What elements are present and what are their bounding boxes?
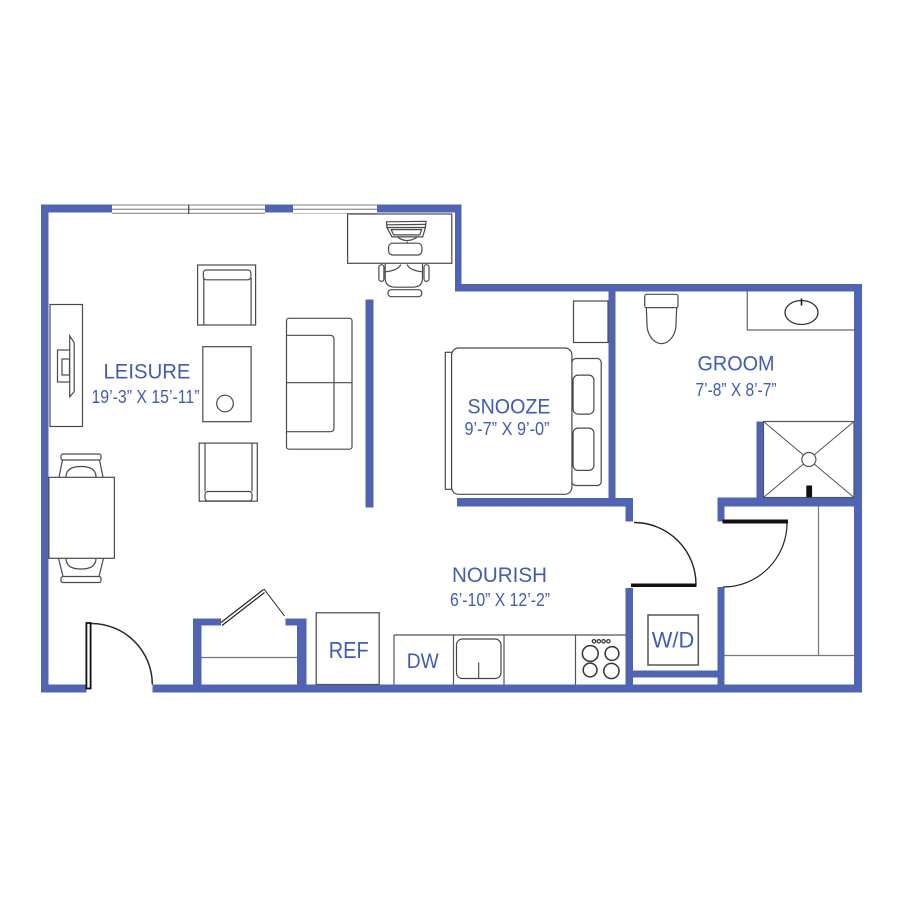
- svg-text:REF: REF: [329, 637, 369, 663]
- svg-text:GROOM: GROOM: [698, 352, 775, 376]
- svg-text:W/D: W/D: [652, 628, 695, 653]
- svg-text:19’-3” X 15’-11”: 19’-3” X 15’-11”: [92, 387, 200, 407]
- svg-text:9’-7” X 9’-0”: 9’-7” X 9’-0”: [465, 419, 550, 439]
- svg-text:7’-8” X 8’-7”: 7’-8” X 8’-7”: [696, 380, 777, 400]
- svg-text:6’-10” X 12’-2”: 6’-10” X 12’-2”: [450, 590, 550, 610]
- svg-text:SNOOZE: SNOOZE: [468, 394, 551, 418]
- svg-text:LEISURE: LEISURE: [104, 360, 191, 384]
- svg-text:NOURISH: NOURISH: [452, 563, 547, 587]
- svg-text:DW: DW: [407, 649, 440, 673]
